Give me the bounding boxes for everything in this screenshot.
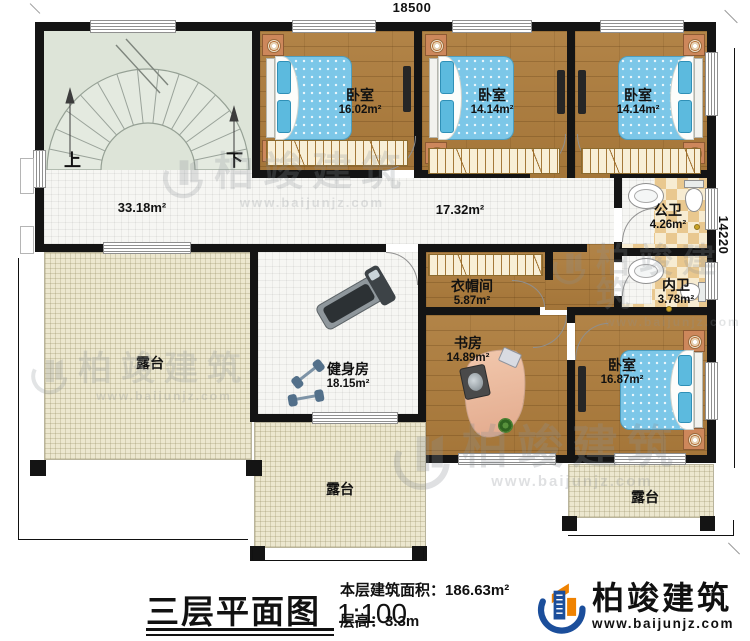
- wall-segment: [35, 22, 44, 252]
- title-underline: [146, 628, 334, 631]
- bed-headboard: [266, 58, 275, 138]
- room-name: 露台: [136, 356, 164, 372]
- wall-segment: [252, 22, 260, 170]
- window: [33, 150, 46, 188]
- room-label-bedroom2: 卧室 14.14m²: [471, 88, 514, 117]
- eave-outline: [568, 520, 734, 536]
- pillow: [440, 100, 454, 133]
- brand-url: www.baijunjz.com: [592, 616, 734, 631]
- wall-segment: [396, 414, 426, 422]
- wall-segment: [426, 455, 458, 463]
- wall-segment: [567, 22, 575, 178]
- floor-height-value: 3.3m: [385, 613, 419, 630]
- corner-tick: [30, 3, 41, 14]
- room-name: 卧室: [478, 88, 506, 104]
- room-label-bedroom4: 卧室 16.87m²: [601, 358, 644, 387]
- wardrobe: [428, 254, 543, 276]
- dimension-right: 14220: [717, 205, 731, 265]
- pillow: [277, 100, 291, 133]
- tv: [557, 70, 565, 114]
- sliding-door: [312, 412, 398, 424]
- wall-segment: [414, 22, 422, 178]
- floor-height-label: 层高：: [340, 613, 385, 630]
- wall-segment: [418, 244, 426, 422]
- room-name: 书房: [454, 336, 482, 352]
- room-label-terrace-left: 露台: [136, 356, 164, 372]
- window: [705, 52, 718, 116]
- wall-segment: [567, 307, 575, 323]
- wall-segment: [545, 252, 553, 280]
- corner-tick: [724, 10, 737, 23]
- nightstand: [425, 34, 447, 56]
- column-post: [246, 460, 262, 476]
- eave-outline: [18, 258, 248, 540]
- room-label-bedroom1: 卧室 16.02m²: [339, 88, 382, 117]
- wall-segment: [567, 307, 716, 315]
- wardrobe: [581, 148, 701, 174]
- brand-name: 柏竣建筑: [592, 582, 732, 614]
- nightstand: [683, 428, 705, 450]
- sliding-door: [458, 453, 556, 465]
- room-area: 3.78m²: [658, 294, 694, 307]
- stair-down-label: 下: [226, 146, 243, 171]
- wardrobe: [428, 148, 560, 174]
- floorplan-canvas: 上 下: [0, 0, 750, 641]
- tv: [403, 66, 411, 112]
- room-name: 衣帽间: [451, 279, 493, 295]
- window: [705, 362, 718, 420]
- window: [600, 20, 684, 33]
- sliding-door: [103, 242, 191, 254]
- window: [292, 20, 376, 33]
- pillow: [678, 100, 692, 133]
- floor-height-row: 层高：3.3m: [340, 613, 509, 631]
- room-label-terrace-right: 露台: [631, 490, 659, 506]
- nightstand: [262, 34, 284, 56]
- room-name: 公卫: [654, 203, 682, 219]
- floor-area-value: 186.63m²: [445, 582, 509, 599]
- brand-logo-icon: [532, 577, 586, 635]
- pillow: [678, 392, 692, 423]
- pillow: [678, 355, 692, 386]
- floor-drain: [694, 224, 700, 230]
- floor-drain: [666, 306, 672, 312]
- toilet-tank: [684, 180, 704, 188]
- eave-outline: [252, 548, 424, 561]
- stair-up-label: 上: [64, 146, 81, 171]
- wall-segment: [614, 242, 622, 262]
- nightstand: [683, 330, 705, 352]
- wall-segment: [614, 178, 622, 208]
- room-label-inner-bath: 内卫 3.78m²: [658, 278, 694, 307]
- wall-segment: [252, 170, 382, 178]
- floor-area-row: 本层建筑面积：186.63m²: [340, 582, 509, 600]
- plant: [498, 418, 513, 433]
- wall-segment: [250, 414, 314, 422]
- plan-title: 三层平面图: [146, 585, 321, 633]
- bed-headboard: [694, 58, 703, 138]
- room-label-bedroom3: 卧室 14.14m²: [617, 88, 660, 117]
- floor-area-label: 本层建筑面积：: [340, 582, 445, 599]
- pillow: [277, 61, 291, 94]
- room-area: 14.14m²: [617, 104, 660, 117]
- pillow: [440, 61, 454, 94]
- room-label-cloakroom: 衣帽间 5.87m²: [451, 279, 493, 308]
- wall-segment: [426, 307, 540, 315]
- exterior-sill: [20, 158, 34, 194]
- pillow: [678, 61, 692, 94]
- room-label-terrace-bottom: 露台: [326, 482, 354, 498]
- room-area: 18.15m²: [327, 378, 370, 391]
- dimension-top: 18500: [382, 0, 442, 15]
- room-name: 健身房: [327, 362, 369, 378]
- eave-outline: [734, 48, 735, 468]
- room-label-gym: 健身房 18.15m²: [327, 362, 370, 391]
- tv: [578, 70, 586, 114]
- room-area: 16.02m²: [339, 104, 382, 117]
- room-name: 卧室: [346, 88, 374, 104]
- room-name: 内卫: [662, 278, 690, 294]
- wardrobe: [266, 140, 408, 166]
- room-label-public-bath: 公卫 4.26m²: [650, 203, 686, 232]
- wall-segment: [567, 360, 575, 463]
- corridor-floor: [252, 178, 614, 244]
- wall-segment: [686, 455, 716, 463]
- window: [90, 20, 176, 33]
- plan-stats: 本层建筑面积：186.63m² 层高：3.3m: [340, 582, 509, 641]
- window: [705, 262, 718, 300]
- room-area: 5.87m²: [454, 295, 490, 308]
- room-area: 16.87m²: [601, 374, 644, 387]
- bed-headboard: [694, 352, 703, 428]
- wall-segment: [191, 244, 386, 252]
- room-area: 14.89m²: [447, 352, 490, 365]
- room-name: 卧室: [608, 358, 636, 374]
- wall-segment: [556, 455, 614, 463]
- wall-segment: [35, 244, 103, 252]
- room-area: 14.14m²: [471, 104, 514, 117]
- passage-floor: [545, 244, 614, 310]
- tv: [578, 366, 586, 412]
- room-name: 卧室: [624, 88, 652, 104]
- title-underline: [146, 634, 334, 636]
- room-label-study: 书房 14.89m²: [447, 336, 490, 365]
- bed-headboard: [429, 58, 438, 138]
- wall-segment: [250, 244, 258, 422]
- room-name: 露台: [326, 482, 354, 498]
- room-area: 4.26m²: [650, 219, 686, 232]
- room-name: 露台: [631, 490, 659, 506]
- nightstand: [683, 34, 705, 56]
- wall-segment: [426, 244, 587, 252]
- corner-tick: [728, 542, 740, 554]
- window: [452, 20, 532, 33]
- wall-segment: [622, 248, 707, 256]
- exterior-sill: [20, 226, 34, 254]
- brand-logo: 柏竣建筑 www.baijunjz.com: [532, 577, 734, 635]
- window: [614, 453, 686, 465]
- hall-area-label: 33.18m²: [118, 200, 166, 215]
- corridor-area-label: 17.32m²: [436, 202, 484, 217]
